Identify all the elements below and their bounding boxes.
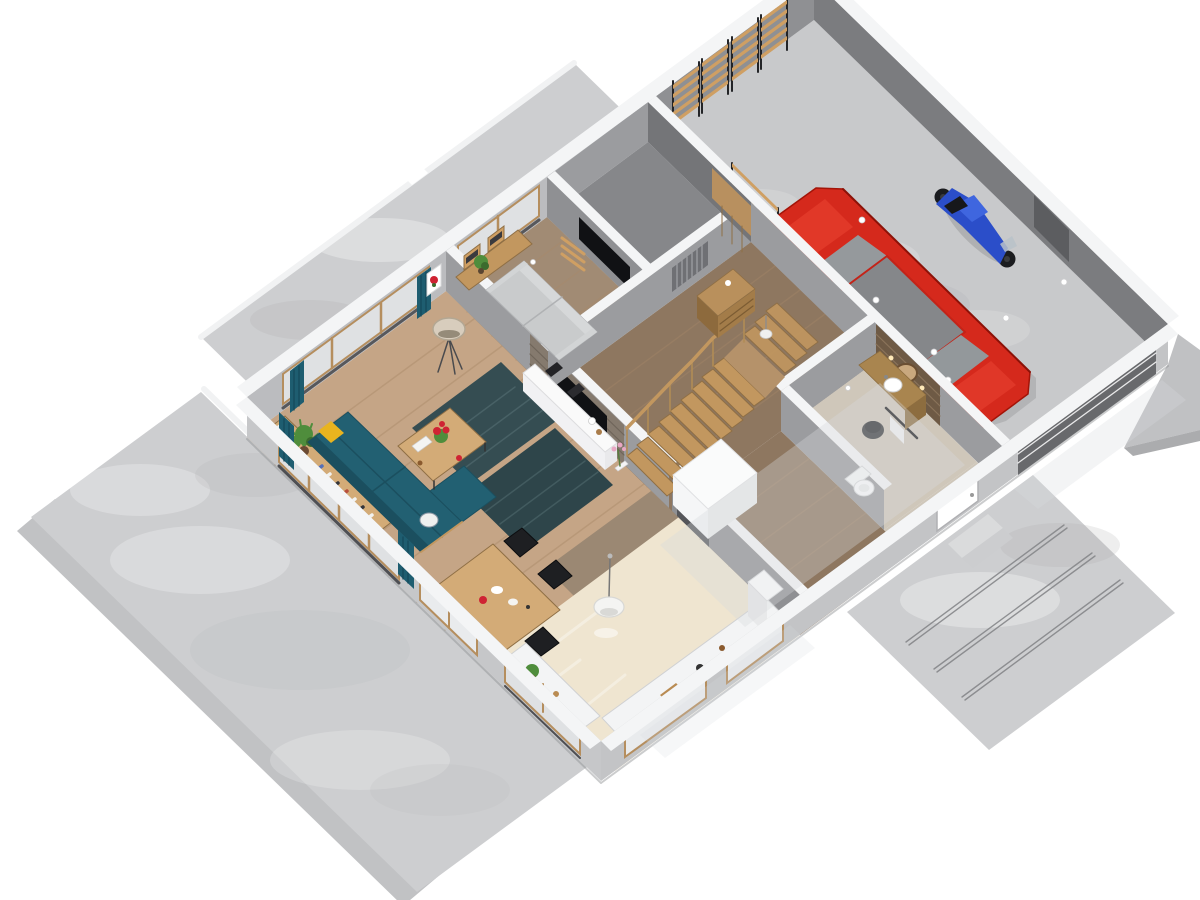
door-knob xyxy=(970,493,974,497)
dresser-decor xyxy=(725,280,731,286)
vase xyxy=(589,418,596,425)
floor-plan-svg xyxy=(0,0,1200,900)
den-ceiling-light xyxy=(531,260,536,265)
red-bowl xyxy=(479,596,487,604)
faucet xyxy=(884,375,888,379)
bath-ceiling-light xyxy=(846,386,851,391)
floor-plan-render xyxy=(0,0,1200,900)
patterned-cushion xyxy=(420,513,438,527)
red-cup xyxy=(456,455,462,461)
